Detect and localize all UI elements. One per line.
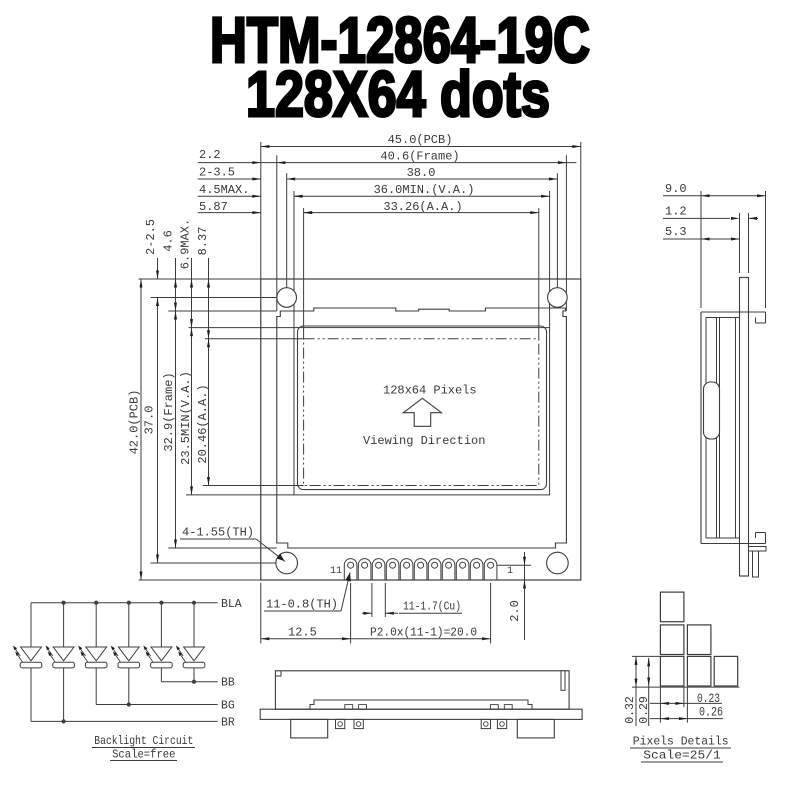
svg-text:32.9(Frame): 32.9(Frame) [162, 372, 176, 451]
svg-text:9.0: 9.0 [665, 182, 687, 196]
svg-text:0.32: 0.32 [624, 696, 637, 724]
svg-text:2.0: 2.0 [508, 600, 522, 622]
svg-text:BLA: BLA [221, 598, 242, 611]
svg-text:2-3.5: 2-3.5 [199, 166, 235, 180]
svg-text:11-1.7(Cu): 11-1.7(Cu) [403, 600, 461, 614]
svg-text:P2.0x(11-1)=20.0: P2.0x(11-1)=20.0 [370, 626, 477, 640]
svg-text:38.0: 38.0 [407, 166, 436, 180]
svg-text:2.2: 2.2 [199, 148, 221, 162]
svg-text:Viewing Direction: Viewing Direction [363, 434, 485, 448]
svg-text:2-2.5: 2-2.5 [144, 219, 158, 255]
svg-text:37.0: 37.0 [143, 406, 157, 435]
svg-text:Scale=25/1: Scale=25/1 [643, 749, 720, 763]
svg-text:12.5: 12.5 [288, 626, 317, 640]
svg-text:Scale=free: Scale=free [112, 748, 175, 762]
svg-text:23.5MIN(V.A.): 23.5MIN(V.A.) [179, 371, 193, 465]
svg-text:45.0(PCB): 45.0(PCB) [388, 133, 453, 147]
svg-text:5.3: 5.3 [665, 225, 687, 239]
svg-text:11-0.8(TH): 11-0.8(TH) [266, 598, 338, 612]
svg-text:BR: BR [221, 717, 235, 730]
svg-text:BG: BG [221, 700, 235, 713]
svg-text:42.0(PCB): 42.0(PCB) [128, 390, 142, 455]
svg-text:Backlight Circuit: Backlight Circuit [94, 734, 193, 748]
svg-text:8.37: 8.37 [196, 227, 210, 256]
svg-text:0.26: 0.26 [699, 705, 723, 720]
svg-text:33.26(A.A.): 33.26(A.A.) [383, 200, 462, 214]
svg-text:BB: BB [221, 677, 235, 690]
svg-text:36.0MIN.(V.A.): 36.0MIN.(V.A.) [374, 183, 475, 197]
svg-text:4.6: 4.6 [162, 230, 176, 252]
svg-text:1: 1 [507, 566, 513, 577]
svg-text:4-1.55(TH): 4-1.55(TH) [182, 526, 254, 540]
svg-text:20.46(A.A.): 20.46(A.A.) [196, 384, 210, 463]
svg-text:4.5MAX.: 4.5MAX. [199, 183, 249, 197]
svg-text:6.9MAX.: 6.9MAX. [179, 219, 193, 269]
svg-text:1.2: 1.2 [665, 205, 687, 219]
svg-text:128X64 dots: 128X64 dots [246, 58, 550, 130]
svg-text:128x64 Pixels: 128x64 Pixels [383, 384, 477, 398]
svg-text:5.87: 5.87 [199, 200, 228, 214]
svg-text:40.6(Frame): 40.6(Frame) [380, 149, 459, 163]
svg-text:11: 11 [330, 566, 342, 577]
svg-text:Pixels Details: Pixels Details [633, 735, 729, 749]
